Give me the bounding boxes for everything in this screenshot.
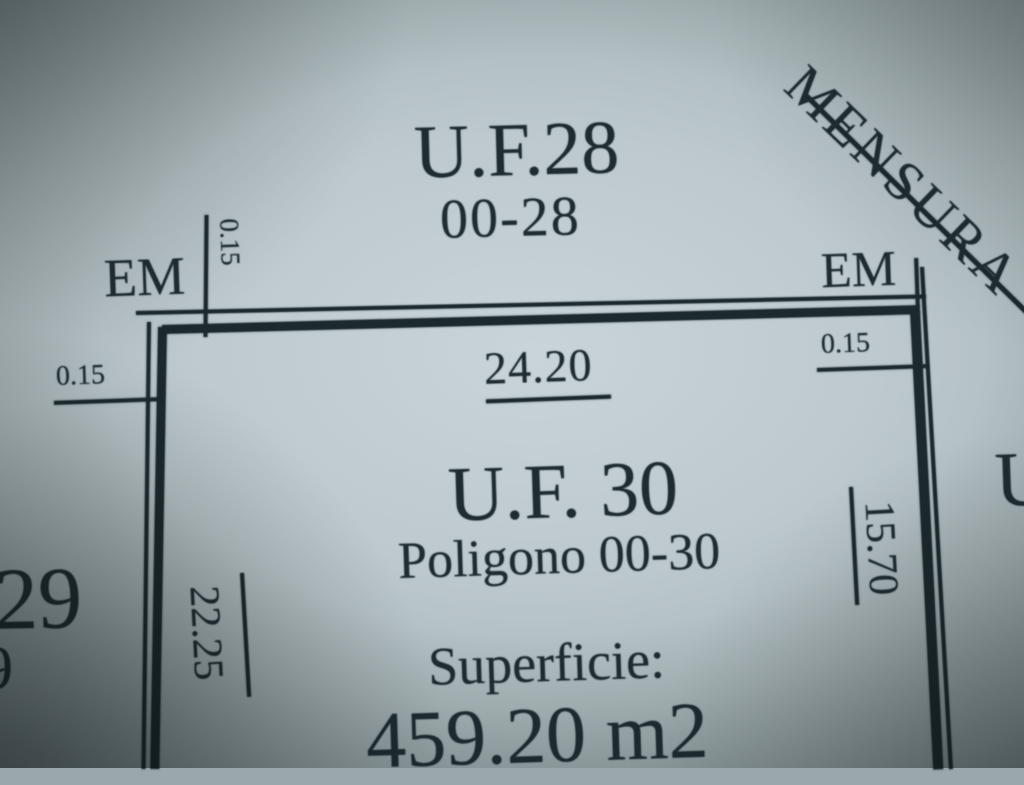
dimension-underline-top-width <box>486 395 611 404</box>
dimension-top-width: 24.20 <box>483 342 593 392</box>
left-parcel-code-partial: 9 <box>0 638 13 700</box>
dimension-underline-left-depth <box>240 573 251 697</box>
left-parcel-number-partial: 29 <box>0 555 83 645</box>
offset-dim-left: 0.15 <box>56 361 106 391</box>
party-wall-label-left: EM <box>103 249 186 306</box>
offset-tick-line-left <box>54 397 161 405</box>
offset-tick-line-right <box>817 364 928 372</box>
extension-line-top-left <box>203 215 208 337</box>
area-label: Superficie: <box>427 632 666 693</box>
party-wall-label-right: EM <box>820 243 897 296</box>
dimension-left-depth: 22.25 <box>182 581 229 685</box>
offset-dim-right: 0.15 <box>821 329 871 359</box>
main-parcel-polygon: Poligono 00-30 <box>397 526 721 588</box>
main-parcel-title: U.F. 30 <box>447 448 679 533</box>
parcel-boundary-left <box>150 327 167 769</box>
offset-dim-top-left: 0.15 <box>215 213 245 272</box>
upper-parcel-title: U.F.28 <box>413 109 620 190</box>
mensura-stamp-text: MENSURA <box>775 56 1024 306</box>
survey-plan-drawing: U.F.28 00-28 MENSURA EM EM 0.15 0.15 0.1… <box>0 0 1024 768</box>
party-wall-line-left <box>142 322 151 769</box>
upper-parcel-code: 00-28 <box>439 188 581 248</box>
dimension-right-depth: 15.70 <box>857 496 904 600</box>
photo-paper-background: U.F.28 00-28 MENSURA EM EM 0.15 0.15 0.1… <box>0 0 1024 768</box>
right-parcel-title-partial: U <box>994 439 1024 519</box>
em-tick-line-right <box>914 258 920 308</box>
